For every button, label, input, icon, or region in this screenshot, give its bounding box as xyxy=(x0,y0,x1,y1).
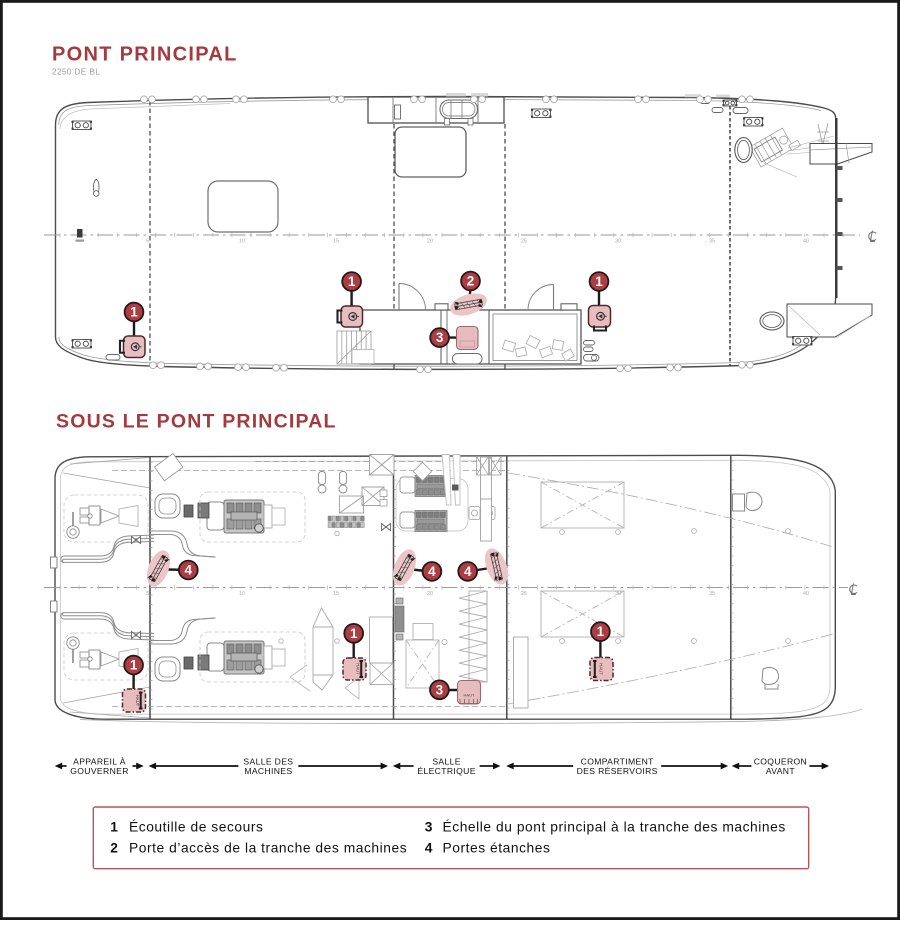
svg-text:HAUT: HAUT xyxy=(356,663,361,675)
svg-text:ÉLECTRIQUE: ÉLECTRIQUE xyxy=(417,766,475,776)
svg-text:MACHINES: MACHINES xyxy=(244,766,292,776)
svg-text:2250 DE BL: 2250 DE BL xyxy=(52,68,100,77)
svg-text:30: 30 xyxy=(615,239,621,245)
svg-text:35: 35 xyxy=(709,239,715,245)
svg-text:1: 1 xyxy=(110,820,118,835)
svg-text:Portes étanches: Portes étanches xyxy=(443,841,551,856)
svg-text:10: 10 xyxy=(239,591,245,597)
svg-text:GOUVERNER: GOUVERNER xyxy=(70,766,129,776)
svg-text:AVANT: AVANT xyxy=(766,766,796,776)
svg-text:COQUERON: COQUERON xyxy=(754,756,807,766)
svg-text:1: 1 xyxy=(595,274,603,289)
svg-text:15: 15 xyxy=(333,239,339,245)
svg-text:40: 40 xyxy=(803,591,809,597)
svg-text:HAUT: HAUT xyxy=(464,693,475,698)
svg-text:2: 2 xyxy=(110,841,118,856)
svg-text:APPAREIL À: APPAREIL À xyxy=(73,756,126,766)
svg-text:15: 15 xyxy=(333,591,339,597)
svg-text:HAUT: HAUT xyxy=(135,695,140,707)
svg-text:5: 5 xyxy=(146,591,149,597)
svg-text:PONT PRINCIPAL: PONT PRINCIPAL xyxy=(52,43,238,65)
svg-text:20: 20 xyxy=(427,239,433,245)
svg-text:3: 3 xyxy=(436,330,444,345)
svg-text:1: 1 xyxy=(130,658,138,673)
svg-text:25: 25 xyxy=(521,591,527,597)
svg-text:SOUS LE PONT PRINCIPAL: SOUS LE PONT PRINCIPAL xyxy=(56,411,337,433)
svg-text:HAUT: HAUT xyxy=(599,663,604,675)
svg-text:Écoutille de secours: Écoutille de secours xyxy=(129,819,263,835)
svg-text:4: 4 xyxy=(425,841,433,856)
svg-text:1: 1 xyxy=(130,305,138,320)
svg-text:4: 4 xyxy=(464,564,472,579)
svg-text:DES RÉSERVOIRS: DES RÉSERVOIRS xyxy=(577,766,658,776)
svg-text:4: 4 xyxy=(185,563,193,578)
svg-text:40: 40 xyxy=(803,239,809,245)
svg-text:35: 35 xyxy=(709,591,715,597)
svg-text:20: 20 xyxy=(427,591,433,597)
svg-text:25: 25 xyxy=(521,239,527,245)
svg-text:1: 1 xyxy=(597,624,605,639)
svg-text:3: 3 xyxy=(425,820,433,835)
svg-text:Échelle du pont principal à la: Échelle du pont principal à la tranche d… xyxy=(443,819,786,835)
svg-text:5: 5 xyxy=(146,239,149,245)
svg-text:3: 3 xyxy=(436,682,444,697)
svg-text:COMPARTIMENT: COMPARTIMENT xyxy=(581,756,655,766)
svg-text:SALLE DES: SALLE DES xyxy=(243,756,293,766)
svg-text:1: 1 xyxy=(348,274,356,289)
svg-text:Porte d’accès de la tranche de: Porte d’accès de la tranche des machines xyxy=(129,841,407,856)
svg-text:1: 1 xyxy=(350,626,358,641)
svg-text:2: 2 xyxy=(467,274,475,289)
svg-text:SALLE: SALLE xyxy=(432,756,461,766)
svg-text:4: 4 xyxy=(428,564,436,579)
svg-text:10: 10 xyxy=(239,239,245,245)
